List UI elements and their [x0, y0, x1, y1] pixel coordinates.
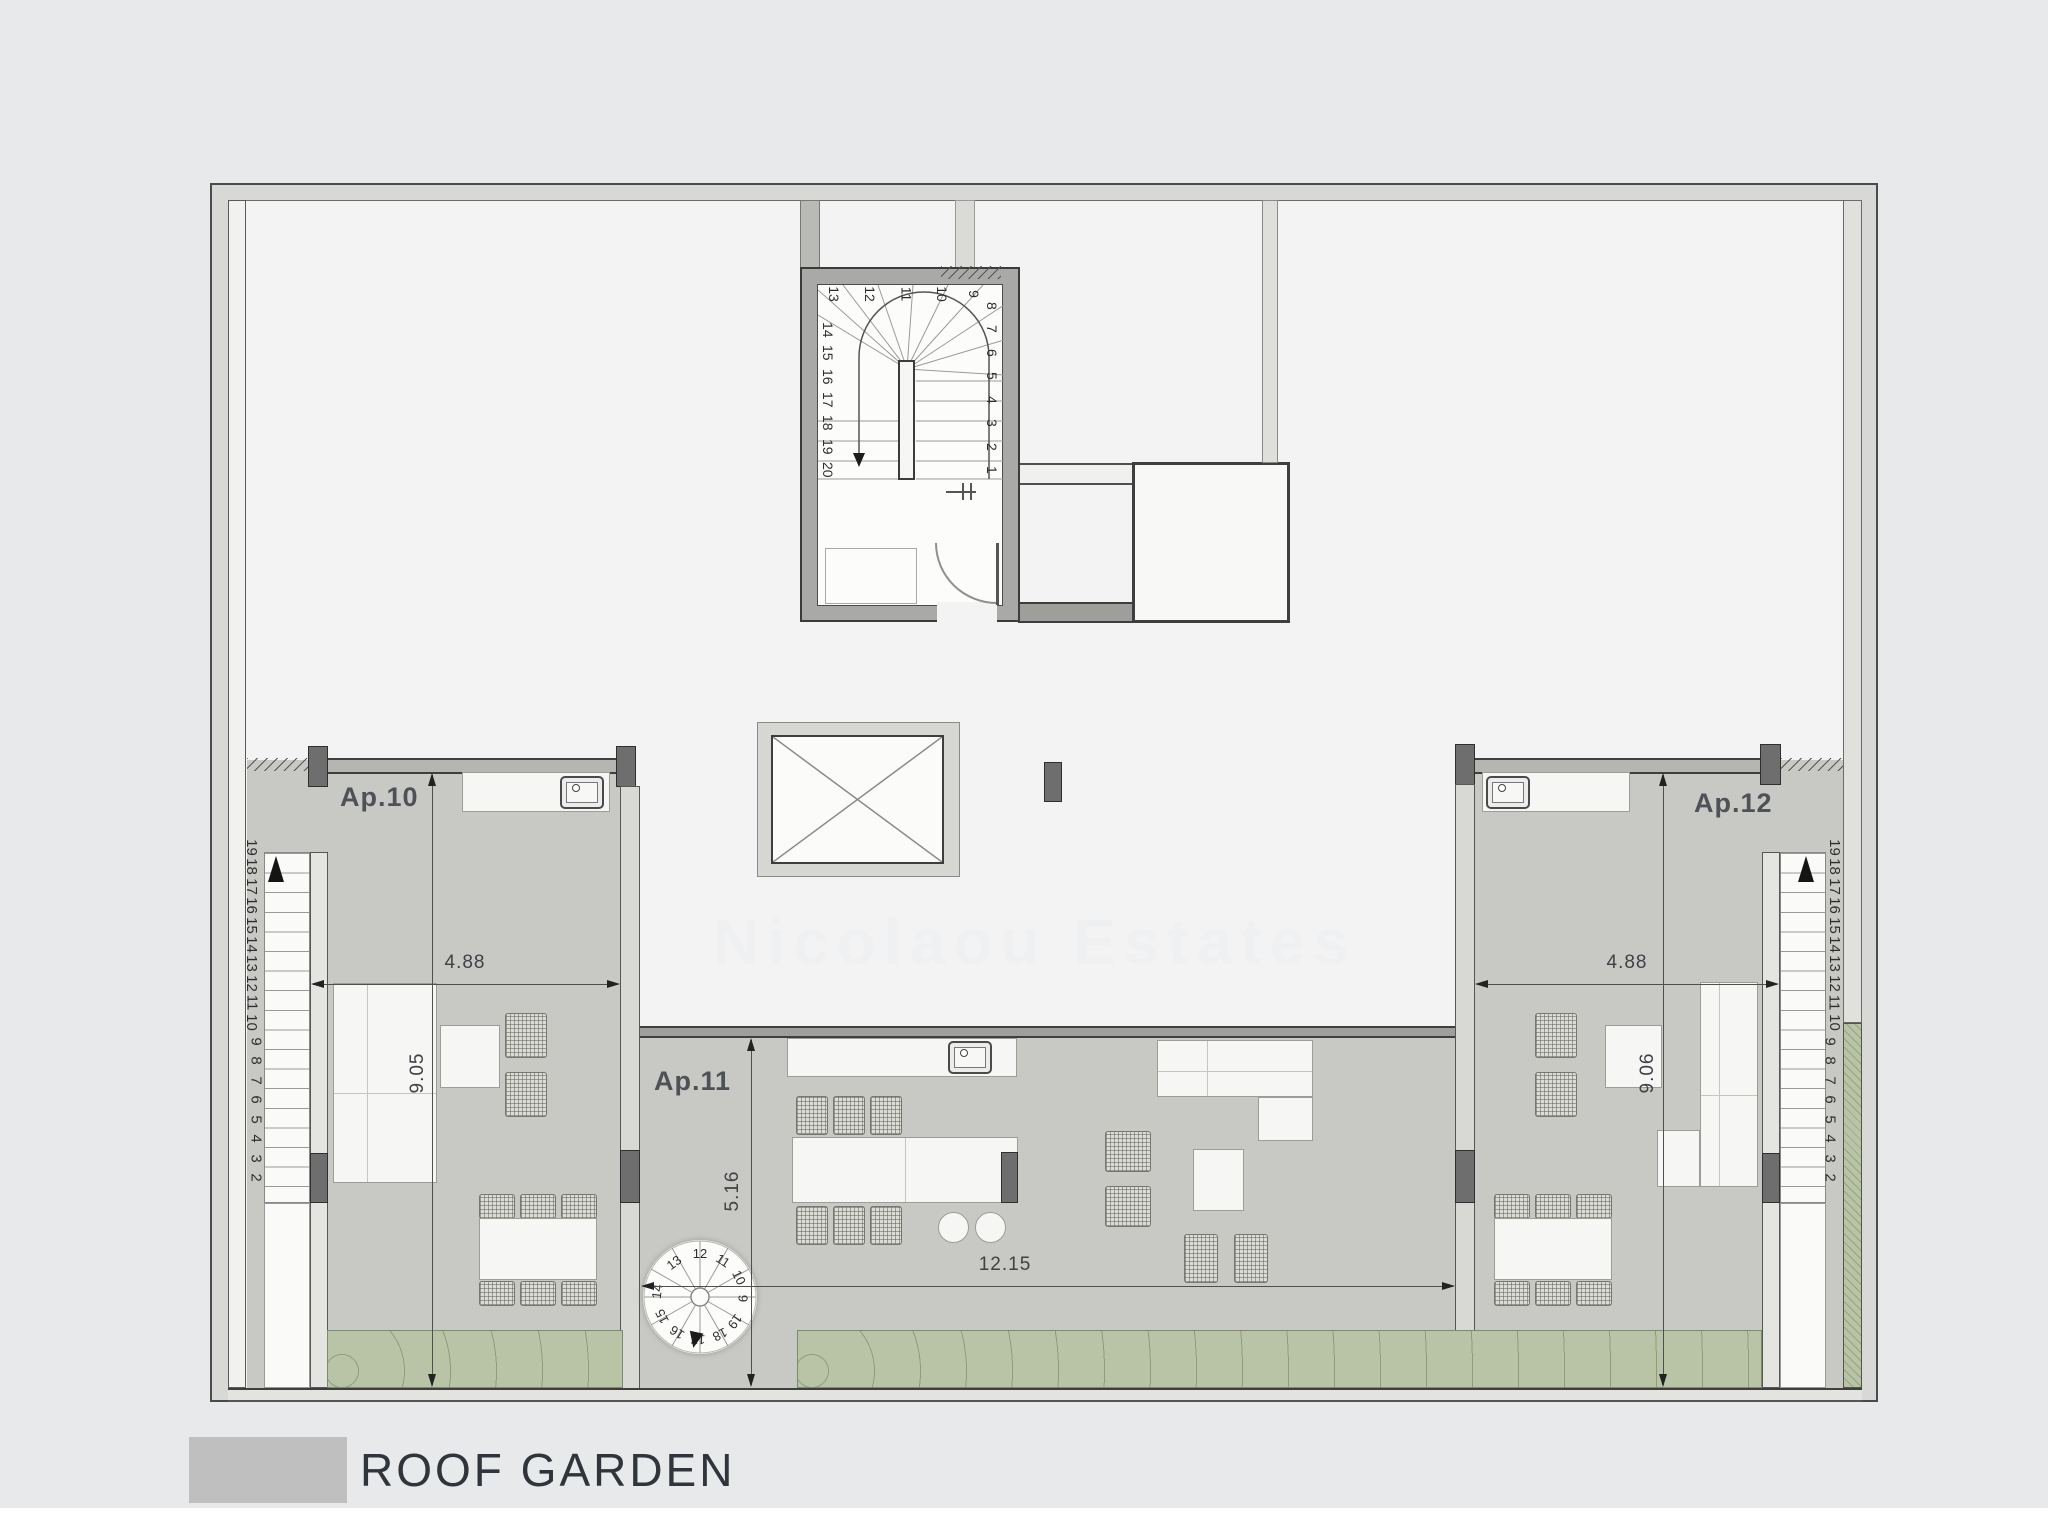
dining-chair	[479, 1194, 515, 1219]
wall-segment	[800, 200, 820, 270]
watermark-text: Nicolaou Estates	[620, 905, 1450, 979]
parapet-wall	[228, 1388, 1862, 1402]
stair-step-number: 15	[244, 917, 259, 934]
stair-step-number: 10	[244, 1014, 259, 1031]
stair-step-number: 11	[1826, 995, 1841, 1011]
wall-band	[1018, 602, 1134, 623]
dining-table-ap12	[1494, 1218, 1612, 1280]
floor-plan-canvas: Nicolaou Estates	[0, 0, 2048, 1536]
page-title: ROOF GARDEN	[360, 1443, 735, 1497]
divider-wall-left	[620, 786, 640, 1390]
sink-ap12	[1486, 776, 1530, 809]
stair-step-number: 16	[244, 897, 259, 914]
stair-step-number: 12	[862, 286, 878, 302]
dimension-ap12-depth: 9.06	[1637, 1028, 1659, 1118]
lounge-chair	[1535, 1072, 1577, 1117]
stair-step-number: 14	[1827, 936, 1842, 953]
dimension-ap12-width: 4.88	[1582, 952, 1672, 974]
dining-chair	[1494, 1194, 1530, 1219]
ottoman	[1184, 1234, 1218, 1283]
wall-block	[620, 1150, 640, 1203]
dimension-line-ap10-depth	[432, 775, 433, 1385]
stair-step-number: 18	[820, 415, 836, 431]
dimension-line-ap10-width	[313, 984, 618, 985]
hedge-planter	[797, 1330, 1762, 1388]
wall-strip	[1262, 200, 1278, 463]
stair-landing-ap10	[264, 1203, 310, 1388]
stair-step-number: 7	[248, 1076, 263, 1084]
sofa-ap11	[1157, 1040, 1313, 1097]
stair-direction-arrow	[268, 856, 284, 882]
dining-chair	[1576, 1194, 1612, 1219]
stair-step-number: 15	[1827, 917, 1842, 934]
stair-spine-wall	[898, 360, 915, 480]
stair-step-number: 9	[966, 290, 982, 298]
stair-step-number: 15	[820, 345, 836, 361]
door-leaf	[996, 543, 999, 605]
dining-chair	[870, 1096, 902, 1135]
lounge-chair	[1105, 1131, 1151, 1172]
stair-step-number: 20	[820, 462, 836, 478]
stair-step-number: 5	[1823, 1115, 1838, 1123]
dimension-line-ap11-depth	[751, 1040, 752, 1385]
stair-step-number: 5	[984, 372, 1000, 388]
stair-landing-ap12	[1780, 1203, 1826, 1388]
sofa-ap12	[1700, 982, 1758, 1187]
stair-step-number: 10	[1827, 1014, 1842, 1031]
stair-step-number: 18	[244, 859, 259, 876]
stair-step-number: 13	[244, 956, 259, 973]
dining-chairs-ap11	[796, 1096, 902, 1135]
lounge-chair	[1535, 1013, 1577, 1058]
corridor-wall	[1020, 463, 1132, 485]
stair-step-number: 8	[1823, 1057, 1838, 1065]
left-boundary-wall	[228, 200, 246, 1388]
dining-table-ap10	[479, 1218, 597, 1280]
spiral-stair-number: 12	[690, 1246, 710, 1261]
handrail-symbol	[962, 483, 964, 500]
dining-chair	[870, 1206, 902, 1245]
dining-chairs-ap10	[479, 1194, 597, 1219]
stair-stringer-ap12	[1762, 852, 1780, 1388]
stair-step-number: 11	[898, 287, 914, 302]
dining-chairs-ap10	[479, 1281, 597, 1306]
stair-step-number: 6	[1823, 1096, 1838, 1104]
stair-step-number: 12	[244, 975, 259, 992]
stair-step-number: 19	[820, 439, 836, 455]
stair-step-number: 3	[984, 419, 1000, 435]
page-margin	[0, 1508, 2048, 1536]
wall-block	[1455, 1150, 1475, 1203]
main-stair-numbers-right: 87654321	[984, 302, 1000, 482]
stair-step-number: 16	[1827, 897, 1842, 914]
side-table-ap11	[1193, 1149, 1244, 1211]
stair-step-number: 9	[248, 1037, 263, 1045]
dining-chair	[833, 1206, 865, 1245]
dining-chairs-ap11	[796, 1206, 902, 1245]
stair-step-number: 8	[984, 302, 1000, 318]
stair-step-number: 19	[244, 839, 259, 856]
stair-numbers-ap10: 1918171615141312111098765432	[232, 840, 260, 1185]
roof-room	[1132, 462, 1290, 623]
sofa-corner-ap11	[1258, 1097, 1313, 1141]
stair-step-number: 4	[1823, 1134, 1838, 1142]
dimension-ap11-width: 12.15	[960, 1254, 1050, 1276]
dining-chair	[1535, 1194, 1571, 1219]
stair-step-number: 16	[820, 369, 836, 385]
stair-step-number: 11	[245, 995, 260, 1011]
dining-chair	[833, 1096, 865, 1135]
door-jamb	[616, 746, 636, 787]
stair-step-number: 13	[826, 286, 842, 302]
stair-step-number: 19	[1827, 839, 1842, 856]
dining-chair	[1576, 1281, 1612, 1306]
main-stair-numbers-top: 131211109	[826, 286, 978, 302]
lounge-chair	[505, 1072, 547, 1117]
dimension-line-ap12-width	[1477, 984, 1777, 985]
landing-closet	[825, 548, 917, 604]
ottoman	[1234, 1234, 1268, 1283]
stair-step-number: 18	[1827, 859, 1842, 876]
dining-chair	[1535, 1281, 1571, 1306]
dining-chair	[520, 1194, 556, 1219]
elevator-shaft	[771, 735, 944, 864]
stair-step-number: 5	[248, 1115, 263, 1123]
stair-step-number: 7	[1823, 1076, 1838, 1084]
dimension-ap11-depth: 5.16	[722, 1146, 744, 1236]
stair-step-number: 17	[820, 392, 836, 408]
enclosure-hatch-edge	[941, 266, 1001, 279]
dining-chair	[520, 1281, 556, 1306]
stair-step-number: 17	[244, 878, 259, 895]
sink-ap10	[560, 776, 604, 809]
stair-step-number: 10	[934, 286, 950, 302]
dining-chair	[479, 1281, 515, 1306]
coffee-table-ap10	[440, 1025, 500, 1088]
stair-step-number: 14	[820, 322, 836, 338]
dimension-ap10-width: 4.88	[420, 952, 510, 974]
stair-step-number: 2	[248, 1173, 263, 1181]
stair-treads-ap12	[1780, 852, 1826, 1203]
door-jamb	[1760, 744, 1781, 785]
stair-step-number: 7	[984, 325, 1000, 341]
stair-step-number: 12	[1827, 975, 1842, 992]
main-stair-numbers-left: 14151617181920	[820, 322, 836, 478]
sink-ap11	[948, 1041, 992, 1074]
stair-step-number: 13	[1827, 956, 1842, 973]
label-ap11: Ap.11	[654, 1066, 731, 1097]
stair-step-number: 8	[248, 1057, 263, 1065]
stair-step-number: 3	[1823, 1154, 1838, 1162]
stair-step-number: 6	[248, 1096, 263, 1104]
dining-chairs-ap12	[1494, 1194, 1612, 1219]
dining-chairs-ap12	[1494, 1281, 1612, 1306]
side-planter	[1843, 1023, 1862, 1388]
divider-wall-right	[1455, 784, 1475, 1390]
lounge-chair	[1105, 1186, 1151, 1227]
terrace-wall-ap11	[640, 1026, 1455, 1038]
handrail-symbol	[970, 483, 972, 500]
stair-step-number: 3	[248, 1154, 263, 1162]
stair-step-number: 4	[984, 396, 1000, 412]
dining-chair	[796, 1096, 828, 1135]
dimension-ap10-depth: 9.05	[407, 1028, 429, 1118]
stool	[975, 1212, 1006, 1243]
dining-chair	[561, 1194, 597, 1219]
hedge-planter	[327, 1330, 623, 1388]
door-jamb	[308, 746, 328, 787]
glass-balustrade-ap12	[1781, 758, 1843, 771]
stair-step-number: 17	[1827, 878, 1842, 895]
stair-treads-ap10	[264, 852, 310, 1203]
column	[1044, 762, 1062, 802]
lounge-chair	[505, 1013, 547, 1058]
stair-step-number: 1	[984, 466, 1000, 482]
label-ap10: Ap.10	[340, 782, 419, 813]
dining-table-ap11	[792, 1137, 1018, 1203]
dining-chair	[561, 1281, 597, 1306]
elevator-x-icon	[773, 737, 942, 862]
bench-block	[1001, 1152, 1018, 1203]
stair-direction-arrow	[1798, 856, 1814, 882]
label-ap12: Ap.12	[1694, 788, 1773, 819]
wall-segment	[955, 200, 975, 270]
wall-block	[1762, 1153, 1780, 1203]
wall-block	[310, 1153, 328, 1203]
stair-step-number: 9	[1823, 1037, 1838, 1045]
dimension-line-ap11-width	[643, 1286, 1453, 1287]
legend-swatch	[189, 1437, 347, 1503]
spiral-stair-number: 9	[735, 1288, 751, 1309]
door-jamb	[1455, 744, 1475, 785]
dining-chair	[1494, 1281, 1530, 1306]
stool	[938, 1212, 969, 1243]
stair-step-number: 14	[244, 936, 259, 953]
dining-chair	[796, 1206, 828, 1245]
stair-step-number: 2	[984, 443, 1000, 459]
stair-step-number: 6	[984, 349, 1000, 365]
dimension-line-ap12-depth	[1663, 775, 1664, 1385]
stair-step-number: 2	[1823, 1173, 1838, 1181]
stair-step-number: 4	[248, 1134, 263, 1142]
door-opening	[937, 602, 997, 624]
stair-stringer-ap10	[310, 852, 328, 1388]
